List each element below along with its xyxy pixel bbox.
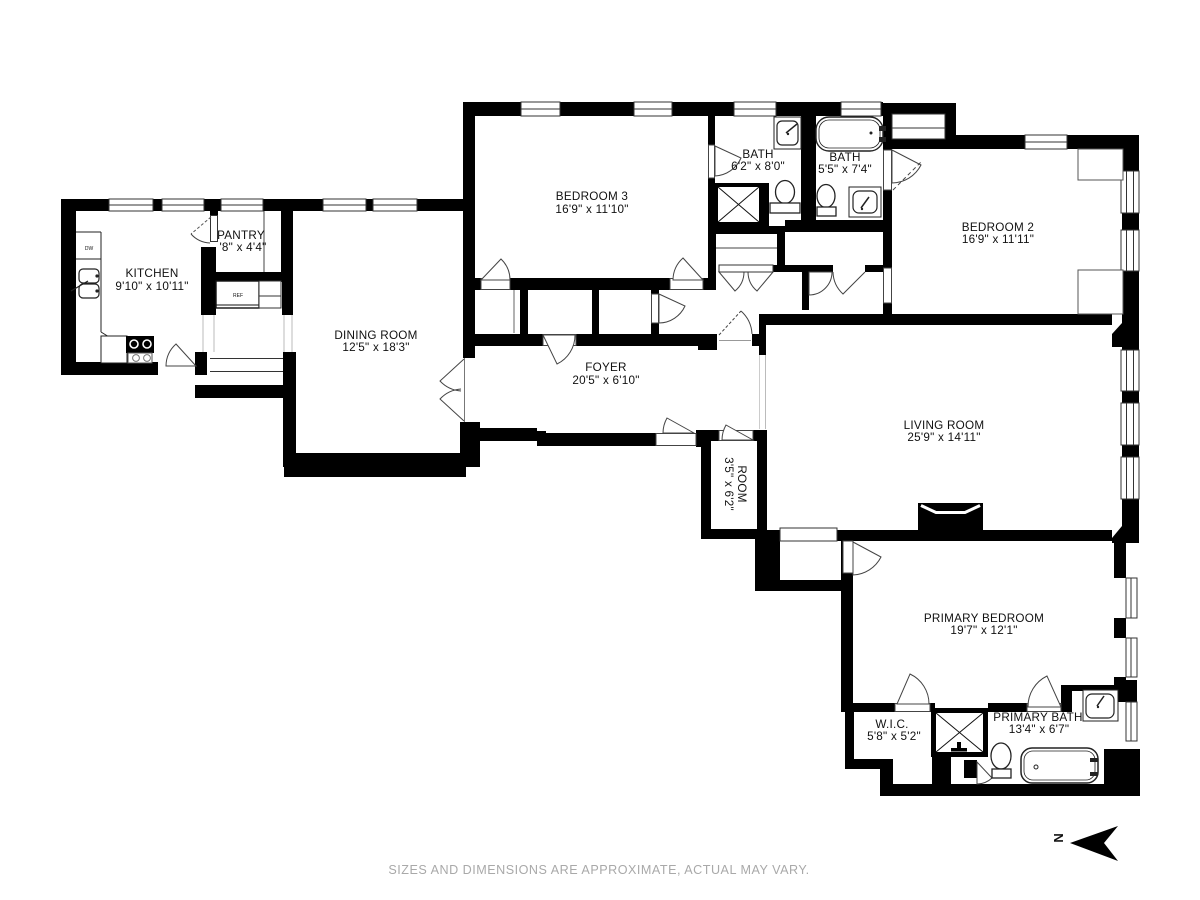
svg-text:DW: DW [85,246,94,252]
svg-text:REF: REF [233,293,243,299]
svg-text:ROOM: ROOM [735,465,748,502]
svg-text:25'9" x 14'11": 25'9" x 14'11" [907,431,980,444]
svg-text:SIZES AND DIMENSIONS ARE APPRO: SIZES AND DIMENSIONS ARE APPROXIMATE, AC… [388,863,809,877]
svg-text:BEDROOM 3: BEDROOM 3 [556,190,628,203]
svg-text:5'5" x 7'4": 5'5" x 7'4" [818,163,872,176]
svg-text:12'5" x 18'3": 12'5" x 18'3" [342,341,409,354]
svg-text:5'8" x 5'2": 5'8" x 5'2" [867,730,921,743]
svg-text:'8" x 4'4": '8" x 4'4" [219,241,266,254]
svg-text:16'9" x 11'11": 16'9" x 11'11" [962,233,1034,246]
svg-text:6'2" x 8'0": 6'2" x 8'0" [731,160,785,173]
svg-text:FOYER: FOYER [585,361,627,374]
svg-text:13'4" x 6'7": 13'4" x 6'7" [1009,723,1070,736]
svg-text:3'5" x 6'2": 3'5" x 6'2" [722,457,735,511]
svg-text:KITCHEN: KITCHEN [125,267,178,280]
svg-text:19'7" x 12'1": 19'7" x 12'1" [950,624,1017,637]
svg-text:20'5" x 6'10": 20'5" x 6'10" [572,374,639,387]
svg-text:9'10" x 10'11": 9'10" x 10'11" [115,280,188,293]
svg-text:16'9" x 11'10": 16'9" x 11'10" [555,203,628,216]
svg-text:N: N [1051,833,1066,842]
